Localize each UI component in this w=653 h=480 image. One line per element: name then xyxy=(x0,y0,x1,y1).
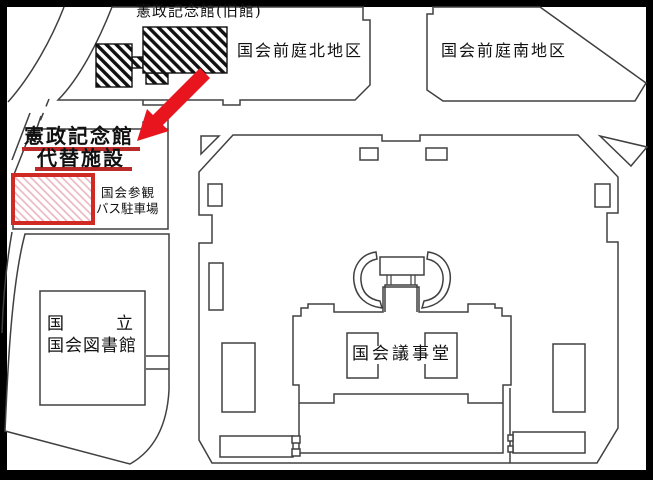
old-hall-west-wing xyxy=(96,44,132,87)
label-south-garden: 国会前庭南地区 xyxy=(441,43,567,60)
annex-east-1 xyxy=(595,184,610,207)
gate-north-right xyxy=(426,148,447,160)
annex-southwest xyxy=(220,436,293,457)
label-bus-parking-2: バス駐車場 xyxy=(96,202,159,215)
tab-west-1 xyxy=(292,436,300,443)
label-diet-building: 国会議事堂 xyxy=(351,346,453,364)
tab-east-1 xyxy=(508,435,513,441)
label-kensei-line1: 憲政記念館 xyxy=(24,126,134,147)
old-hall-main xyxy=(143,27,227,73)
replacement-site-highlight-rect xyxy=(13,175,93,223)
label-north-garden: 国会前庭北地区 xyxy=(237,43,363,60)
annex-west-1 xyxy=(208,184,222,206)
district-map xyxy=(0,0,653,480)
label-library-line2: 国会図書館 xyxy=(47,338,137,356)
annex-west-3 xyxy=(222,343,255,412)
tab-east-2 xyxy=(508,446,513,452)
old-hall-connector xyxy=(132,57,143,68)
label-kensei-line2: 代替施設 xyxy=(37,148,125,169)
label-bus-parking-1: 国会参観 xyxy=(101,186,155,199)
annex-southeast xyxy=(513,432,585,453)
old-hall-south-tab xyxy=(146,73,168,84)
gate-north-left xyxy=(360,148,378,160)
tab-west-2 xyxy=(292,449,300,456)
tower-top xyxy=(380,257,424,275)
diet-building-outline xyxy=(293,287,511,453)
label-library-line1: 国 立 xyxy=(47,316,139,334)
annex-west-2 xyxy=(209,263,223,310)
map-canvas: 憲政記念館(旧館) 国会前庭北地区 国会前庭南地区 憲政記念館 代替施設 国会参… xyxy=(0,0,653,480)
label-kensei-old-hall: 憲政記念館(旧館) xyxy=(136,4,262,20)
annex-east-2 xyxy=(553,344,585,412)
